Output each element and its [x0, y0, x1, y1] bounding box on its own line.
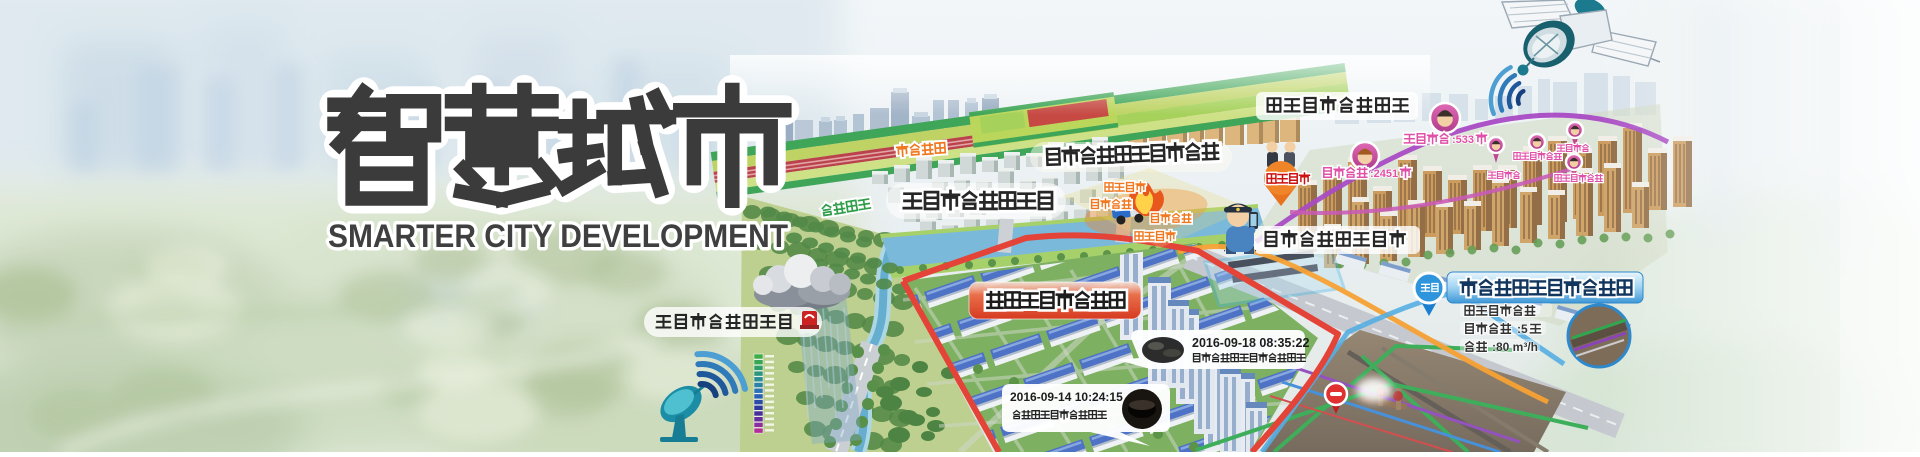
svg-text::80 m³/h: :80 m³/h: [1492, 340, 1538, 354]
svg-text:2016-09-18 08:35:22: 2016-09-18 08:35:22: [1192, 336, 1309, 350]
svg-text::2451: :2451: [1370, 168, 1398, 180]
svg-text::5: :5: [1517, 322, 1528, 336]
svg-text:2016-09-14 10:24:15: 2016-09-14 10:24:15: [1010, 390, 1123, 404]
svg-text:SMARTER CITY DEVELOPMENT: SMARTER CITY DEVELOPMENT: [328, 218, 788, 254]
svg-text::533: :533: [1452, 134, 1474, 146]
